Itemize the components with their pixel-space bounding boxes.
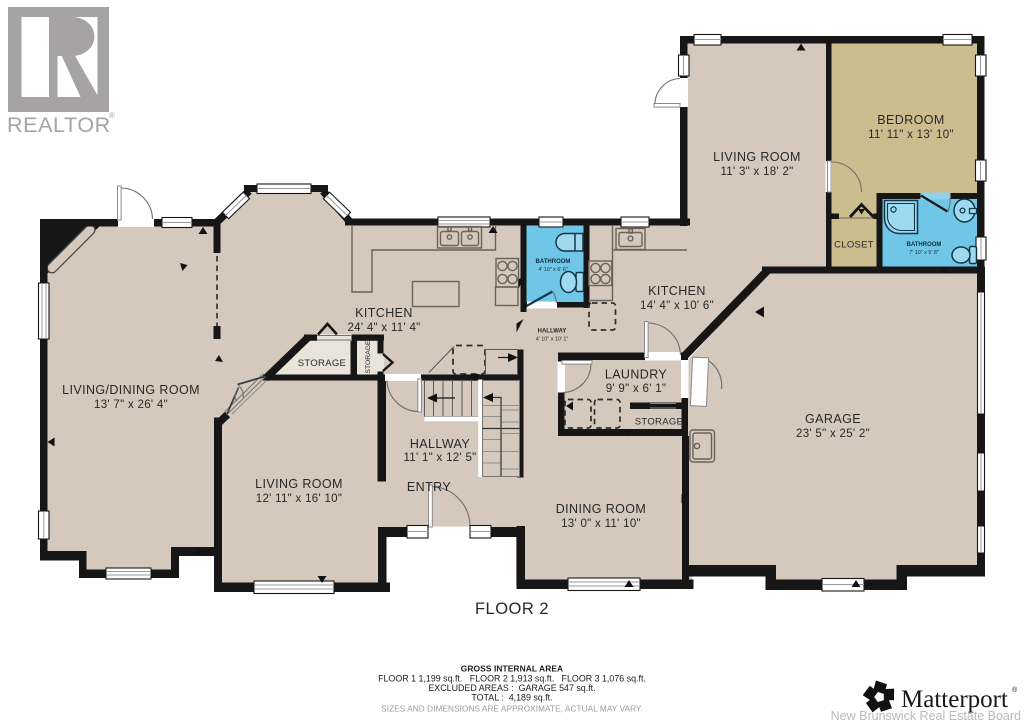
svg-text:LAUNDRY: LAUNDRY <box>605 368 668 382</box>
svg-text:4' 10" x 10' 1": 4' 10" x 10' 1" <box>536 337 569 343</box>
svg-text:BEDROOM: BEDROOM <box>877 113 944 127</box>
svg-text:LIVING/DINING ROOM: LIVING/DINING ROOM <box>62 383 200 397</box>
svg-text:LIVING ROOM: LIVING ROOM <box>713 150 801 164</box>
svg-text:STORAGE: STORAGE <box>365 340 372 374</box>
svg-text:SIZES AND DIMENSIONS ARE APPRO: SIZES AND DIMENSIONS ARE APPROXIMATE, AC… <box>381 705 643 714</box>
svg-text:TOTAL : 4,189 sq.ft.: TOTAL : 4,189 sq.ft. <box>471 693 552 703</box>
svg-text:HALLWAY: HALLWAY <box>410 437 470 451</box>
svg-text:12' 11" x 16' 10": 12' 11" x 16' 10" <box>256 493 343 505</box>
svg-text:23' 5" x 25' 2": 23' 5" x 25' 2" <box>796 428 870 440</box>
svg-text:11' 1" x 12' 5": 11' 1" x 12' 5" <box>403 452 476 464</box>
svg-text:®: ® <box>1012 686 1018 694</box>
svg-text:9' 9" x 6' 1": 9' 9" x 6' 1" <box>606 383 667 395</box>
svg-text:EXCLUDED AREAS : GARAGE 547 s: EXCLUDED AREAS : GARAGE 547 sq.ft. <box>428 683 595 693</box>
svg-text:FLOOR 2: FLOOR 2 <box>475 600 549 618</box>
svg-text:BATHROOM: BATHROOM <box>536 259 571 265</box>
svg-text:STORAGE: STORAGE <box>635 417 683 428</box>
svg-text:HALLWAY: HALLWAY <box>538 329 567 335</box>
svg-text:11' 11" x 13' 10": 11' 11" x 13' 10" <box>868 129 954 141</box>
svg-text:GROSS INTERNAL AREA: GROSS INTERNAL AREA <box>461 664 563 674</box>
svg-text:New Brunswick Real Estate Boar: New Brunswick Real Estate Board <box>831 709 1021 723</box>
svg-text:24' 4" x 11' 4": 24' 4" x 11' 4" <box>347 322 420 334</box>
svg-text:ENTRY: ENTRY <box>407 480 451 494</box>
svg-text:STORAGE: STORAGE <box>298 358 346 369</box>
svg-text:13' 0" x 11' 10": 13' 0" x 11' 10" <box>561 518 641 530</box>
svg-text:BATHROOM: BATHROOM <box>907 242 942 248</box>
svg-text:7' 10" x 5' 8": 7' 10" x 5' 8" <box>909 250 939 256</box>
svg-text:DINING ROOM: DINING ROOM <box>556 502 647 516</box>
svg-text:REALTOR: REALTOR <box>7 113 111 137</box>
svg-text:®: ® <box>109 111 115 120</box>
svg-text:KITCHEN: KITCHEN <box>648 284 706 298</box>
svg-text:KITCHEN: KITCHEN <box>355 306 413 320</box>
svg-text:FLOOR 1 1,199 sq.ft. FLOOR 2: FLOOR 1 1,199 sq.ft. FLOOR 2 1,913 sq.ft… <box>378 674 646 684</box>
svg-text:4' 10" x 6' 6": 4' 10" x 6' 6" <box>538 267 568 273</box>
svg-text:11' 3" x 18' 2": 11' 3" x 18' 2" <box>720 166 793 178</box>
svg-text:14' 4" x 10' 6": 14' 4" x 10' 6" <box>640 300 714 312</box>
svg-text:CLOSET: CLOSET <box>834 240 874 251</box>
svg-text:LIVING ROOM: LIVING ROOM <box>255 477 343 491</box>
svg-text:GARAGE: GARAGE <box>805 412 861 426</box>
svg-text:13' 7" x 26' 4": 13' 7" x 26' 4" <box>94 399 168 411</box>
